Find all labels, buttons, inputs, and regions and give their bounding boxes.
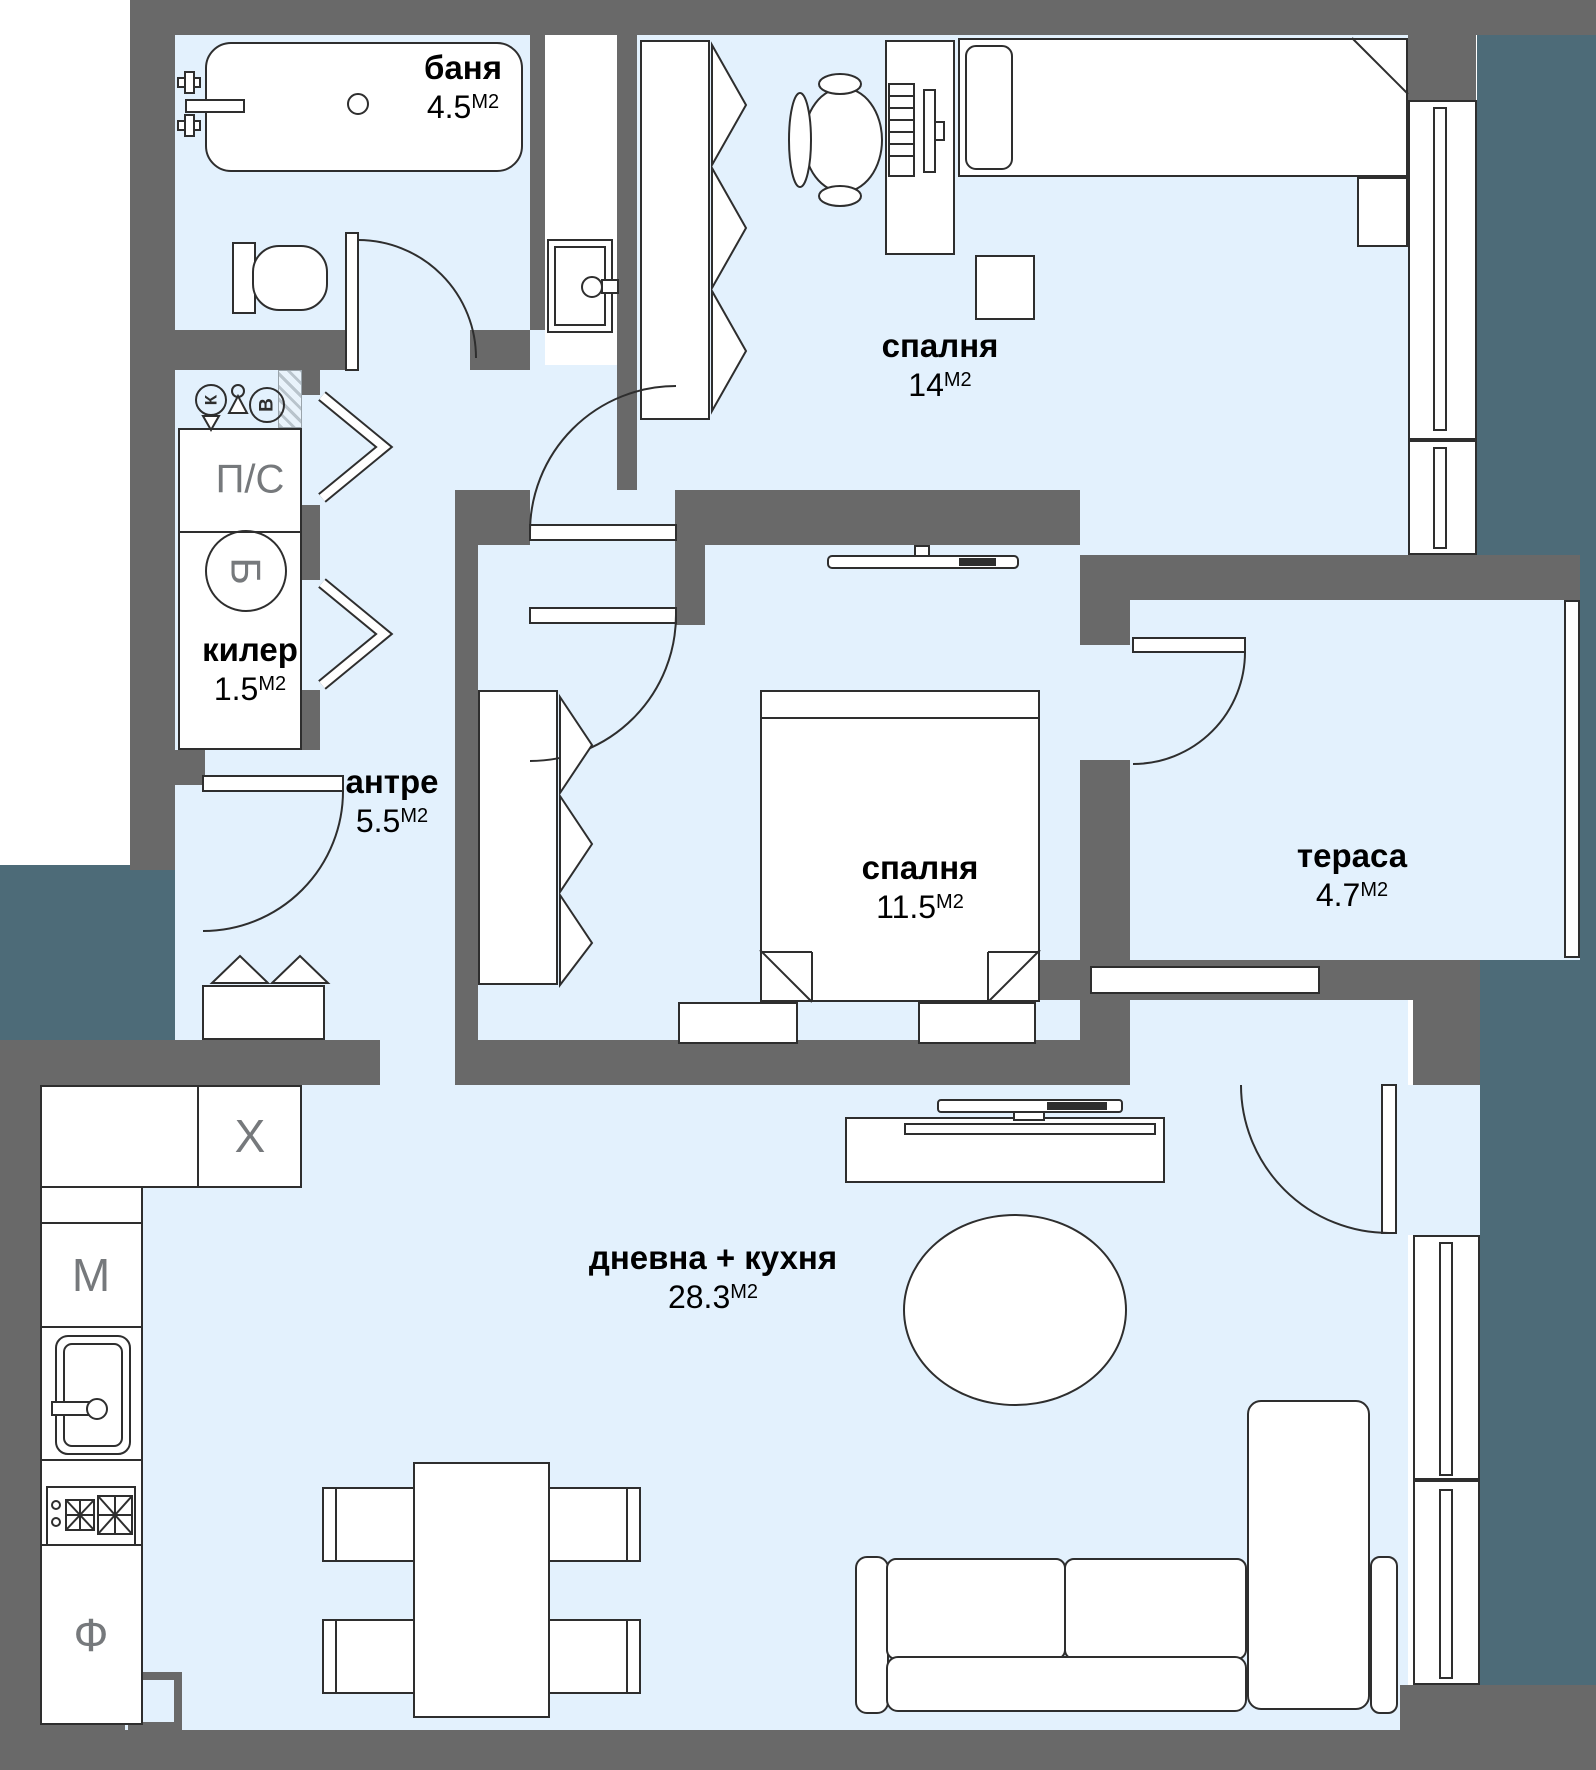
tv-bedroom [828, 546, 1018, 568]
kitchen-details [40, 1085, 198, 1545]
kitchen-sink [52, 1336, 130, 1454]
terrace-door-living [1241, 1085, 1396, 1233]
dishwasher-label: М [72, 1248, 110, 1302]
oven-label: Ф [74, 1608, 109, 1662]
computer-monitor [924, 90, 935, 172]
floor-plan: К В Б П/С Х М Ф баня 4.5М2 спалня 14М2 к… [0, 0, 1596, 1770]
bathtub-fittings [178, 72, 368, 136]
office-chair [789, 74, 882, 206]
terrace-door-bedroom [1133, 638, 1245, 764]
bathroom-sink [548, 240, 618, 332]
bathroom-door [346, 233, 476, 370]
fridge-label: Х [235, 1109, 266, 1163]
room-label-kiler: килер 1.5М2 [202, 630, 298, 708]
wardrobe-door-marks [212, 45, 746, 985]
cooktop [47, 1487, 135, 1545]
entry-door [203, 776, 343, 931]
duct-v-label: В [257, 398, 278, 412]
room-label-dnevna: дневна + кухня 28.3М2 [589, 1238, 837, 1316]
room-name: спалня [862, 848, 979, 888]
room-label-terasa: тераса 4.7М2 [1297, 836, 1407, 914]
bedroom1-door [530, 386, 676, 540]
room-name: антре [346, 762, 439, 802]
room-name: тераса [1297, 836, 1407, 876]
room-name: килер [202, 630, 298, 670]
room-name: дневна + кухня [589, 1238, 837, 1278]
utility-closet-label: П/С [216, 458, 285, 503]
tv-living [905, 1100, 1155, 1134]
room-label-banya: баня 4.5М2 [424, 48, 502, 126]
room-label-spalnya-1: спалня 14М2 [882, 326, 999, 404]
chair-backs [336, 1487, 627, 1694]
bifold-door [322, 396, 384, 685]
desk-equipment [889, 84, 944, 176]
room-name: спалня [882, 326, 999, 366]
toilet [233, 243, 327, 313]
room-label-spalnya-2: спалня 11.5М2 [862, 848, 979, 926]
single-bed-details [966, 38, 1408, 169]
duct-k-label: К [202, 394, 221, 405]
window-glazing [1434, 108, 1452, 1678]
room-label-antre: антре 5.5М2 [346, 762, 439, 840]
room-name: баня [424, 48, 502, 88]
boiler-label: Б [223, 557, 270, 585]
bedroom2-door [530, 608, 676, 761]
